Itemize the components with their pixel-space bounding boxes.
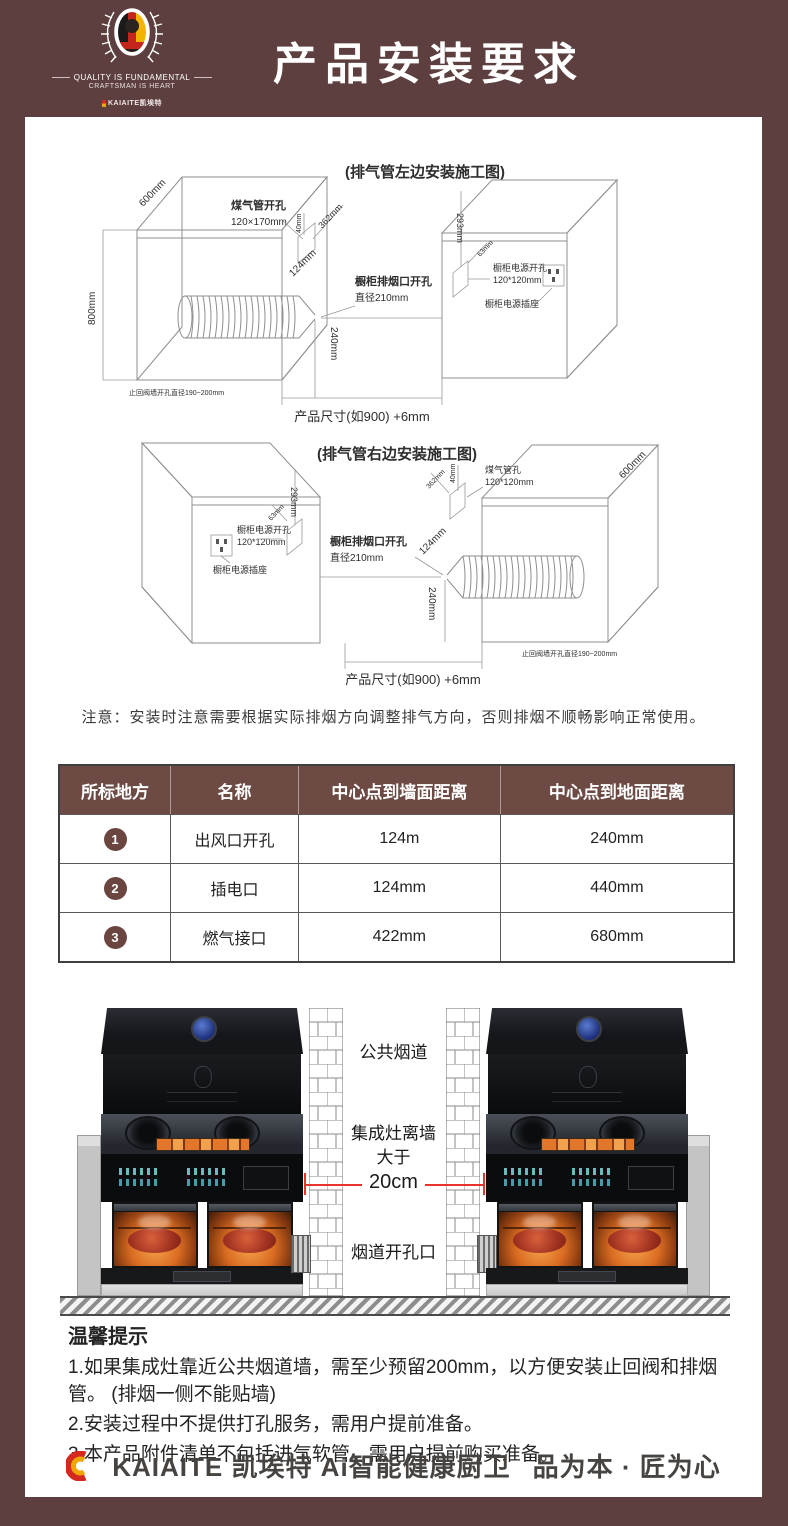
brand-mark-icon [102,100,106,107]
footer-slogan: 品为本 · 匠为心 [533,1447,721,1484]
gas-hole-label: 煤气管孔 [485,464,521,475]
red-dim-line-left [306,1184,362,1186]
row-floor-distance: 240mm [501,814,733,863]
vent-hole-size: 直径210mm [355,291,408,304]
diagram-exhaust-right: (排气管右边安装施工图) 橱柜电源开孔 120*120mm [25,435,762,690]
gas-hole-size: 120*120mm [485,477,534,487]
diagram-right-title: (排气管右边安装施工图) [317,445,477,463]
dim-600-label: 600mm [617,449,648,481]
row-floor-distance: 440mm [501,863,733,912]
label-public-flue: 公共烟道 [25,1038,762,1063]
row-wall-distance: 124m [299,814,501,863]
notice-text: 注意：安装时注意需要根据实际排烟方向调整排气方向，否则排烟不顺畅影响正常使用。 [25,706,762,727]
table-row: 1 出风口开孔 124m 240mm [60,814,733,863]
dim-800 [103,230,137,380]
oven-handle [499,1204,581,1211]
table-row: 2 插电口 124mm 440mm [60,863,733,912]
hood-glass [103,1054,301,1114]
vent-hole-label: 橱柜排烟口开孔 [330,534,407,548]
vent-hole-label: 橱柜排烟口开孔 [355,274,432,288]
spec-table: 所标地方 名称 中心点到墙面距离 中心点到地面距离 1 出风口开孔 124m 2… [58,764,735,963]
power-dim-293: 293mm [289,487,299,517]
header: QUALITY IS FUNDAMENTAL CRAFTSMAN IS HEAR… [0,0,788,117]
power-socket-label: 橱柜电源插座 [485,298,539,309]
gas-dim-40: 40mm [296,213,303,233]
power-socket-icon [211,535,232,556]
label-gap-requirement: 集成灶离墙 大于 20cm [25,1122,762,1194]
row-floor-distance: 680mm [501,912,733,961]
vent-dim-124: 124mm [417,526,448,557]
footer-brand: KAIAITE 凯埃特 Ai智能健康厨卫 品为本 · 匠为心 [25,1447,762,1484]
floor-hatch [60,1296,730,1316]
red-dim-tick-right [483,1173,485,1195]
page-title: 产品安装要求 [0,28,788,92]
diagram-left-title: (排气管左边安装施工图) [345,163,505,181]
diagram-exhaust-left: (排气管左边安装施工图) 800mm 600mm [25,155,762,435]
table-header-row: 所标地方 名称 中心点到墙面距离 中心点到地面距离 [60,766,733,814]
dim-800-label: 800mm [87,292,98,325]
left-cabinet-box [142,443,320,643]
product-size-bracket [282,378,442,405]
kaiaite-logo-icon [66,1451,90,1481]
gas-hole-size: 120×170mm [231,217,287,228]
valve-note: 止回阀墙开孔直径190~200mm [522,649,617,658]
product-size-note: 产品尺寸(如900) +6mm [345,672,480,687]
row-number-badge: 1 [104,828,127,851]
install-illustration: 公共烟道 集成灶离墙 大于 20cm 烟道开孔口 [25,1000,762,1322]
power-hole-label: 橱柜电源开孔 [237,524,291,535]
corrugated-pipe [178,296,315,338]
bottom-drawer [558,1271,616,1282]
hood-glass [488,1054,686,1114]
table-body: 1 出风口开孔 124m 240mm 2 插电口 124mm 440mm 3 燃… [60,814,733,961]
footer-brand-text: KAIAITE 凯埃特 Ai智能健康厨卫 [112,1447,510,1484]
oven-handle [594,1204,676,1211]
vent-dim-240: 240mm [426,587,437,620]
row-name: 出风口开孔 [171,814,299,863]
gas-dim-362: 362mm [316,202,344,231]
table-header-location: 所标地方 [60,766,171,814]
gas-dim-40: 40mm [450,463,457,483]
gas-hole-label: 煤气管开孔 [231,198,286,212]
valve-note: 止回阀墙开孔直径190~200mm [129,388,224,397]
power-hole-size: 120*120mm [493,275,542,285]
corrugated-pipe [447,556,584,598]
vent-dim-240: 240mm [328,327,339,360]
row-wall-distance: 124mm [299,863,501,912]
stove-base [486,1284,688,1296]
dim-600-label: 600mm [137,177,168,209]
table-row: 3 燃气接口 422mm 680mm [60,912,733,961]
power-hole-label: 橱柜电源开孔 [493,262,547,273]
table-header-floor: 中心点到地面距离 [501,766,733,814]
oven-handle [114,1204,196,1211]
table-header-wall: 中心点到墙面距离 [299,766,501,814]
power-dim-293: 293mm [455,213,465,243]
hood-emblem-icon [194,1066,212,1088]
bottom-drawer [173,1271,231,1282]
socket-leader [537,288,552,303]
row-number-badge: 2 [104,877,127,900]
power-dim-63: 63mm [267,503,286,522]
stove-base [101,1284,303,1296]
vent-dim-124: 124mm [287,248,318,279]
power-dim-63: 63mm [476,239,495,258]
power-socket-label: 橱柜电源插座 [213,564,267,575]
label-flue-opening: 烟道开孔口 [25,1238,762,1263]
row-name: 插电口 [171,863,299,912]
vent-hole-size: 直径210mm [330,551,383,564]
tip-item-2: 2.安装过程中不提供打孔服务，需用户提前准备。 [68,1412,728,1439]
brand-small-text: KAIAITE凯埃特 [42,98,222,108]
hood-emblem-icon [579,1066,597,1088]
content-card: (排气管左边安装施工图) 800mm 600mm [25,117,762,1497]
tip-item-1: 1.如果集成灶靠近公共烟道墙，需至少预留200mm，以方便安装止回阀和排烟管。 … [68,1355,728,1409]
power-hole-size: 120*120mm [237,537,286,547]
product-size-note: 产品尺寸(如900) +6mm [294,409,429,424]
table-header-name: 名称 [171,766,299,814]
row-number-badge: 3 [104,926,127,949]
oven-handle [209,1204,291,1211]
row-wall-distance: 422mm [299,912,501,961]
product-size-bracket [345,642,482,669]
tips-title: 温馨提示 [68,1320,728,1349]
page: QUALITY IS FUNDAMENTAL CRAFTSMAN IS HEAR… [0,0,788,1526]
row-name: 燃气接口 [171,912,299,961]
red-dim-line-right [425,1184,483,1186]
